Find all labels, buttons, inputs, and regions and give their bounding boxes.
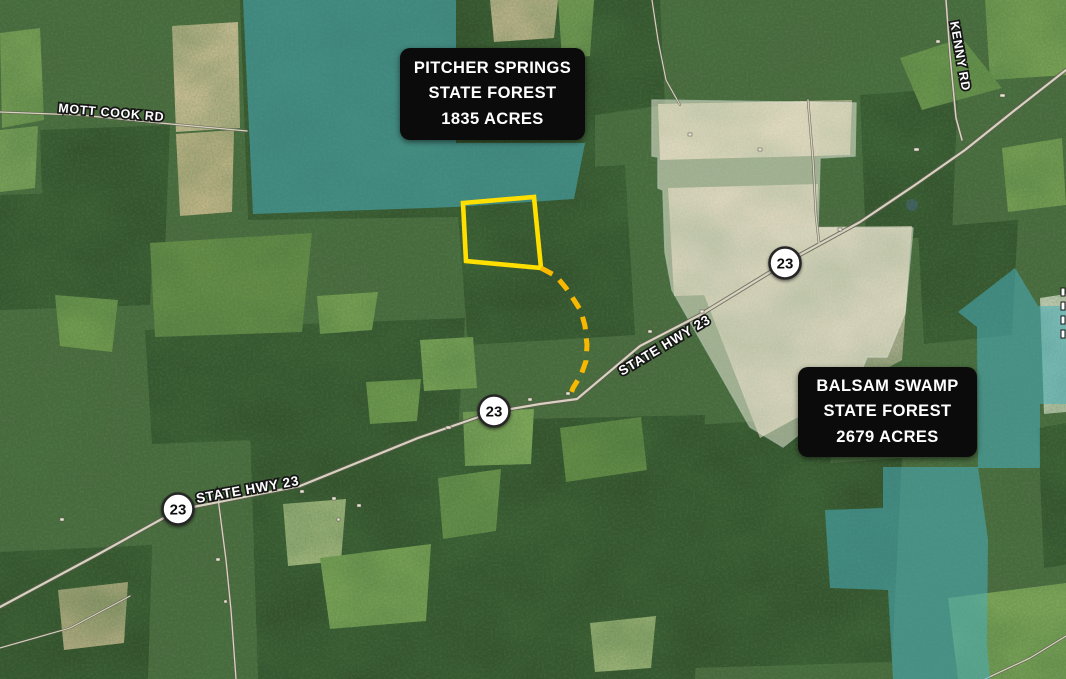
balsam-swamp-state-forest-label: BALSAM SWAMP STATE FOREST 2679 ACRES bbox=[798, 367, 977, 457]
forest-acreage: 2679 ACRES bbox=[798, 425, 977, 451]
route-shield-23-lower: 23 bbox=[163, 494, 194, 525]
map-canvas[interactable]: 23 23 23 MOTT COOK RD KENNY RD STATE HWY… bbox=[0, 0, 1066, 679]
route-shield-number: 23 bbox=[486, 403, 503, 420]
route-shield-23-middle: 23 bbox=[479, 396, 510, 427]
route-shield-number: 23 bbox=[777, 255, 794, 272]
route-shield-23-upper: 23 bbox=[770, 248, 801, 279]
forest-acreage: 1835 ACRES bbox=[400, 107, 585, 133]
route-shield-number: 23 bbox=[170, 501, 187, 518]
forest-name-line: STATE FOREST bbox=[400, 81, 585, 107]
forest-name-line: BALSAM SWAMP bbox=[798, 374, 977, 400]
forest-name-line: STATE FOREST bbox=[798, 399, 977, 425]
forest-name-line: PITCHER SPRINGS bbox=[400, 56, 585, 82]
pitcher-springs-state-forest-label: PITCHER SPRINGS STATE FOREST 1835 ACRES bbox=[400, 48, 585, 140]
